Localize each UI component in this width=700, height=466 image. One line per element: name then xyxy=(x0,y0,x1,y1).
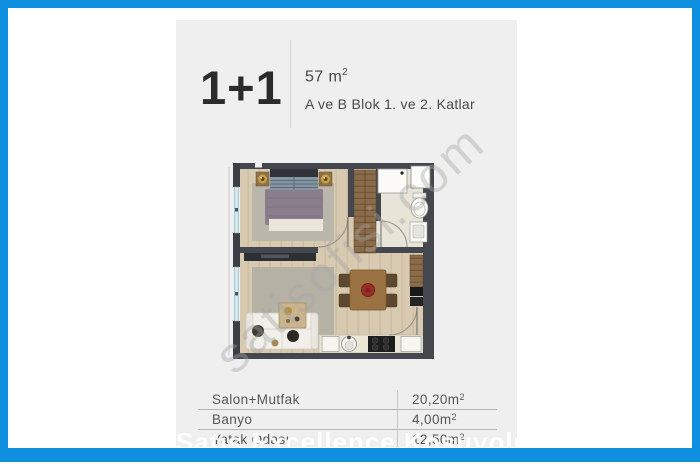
room-area-value: 20,20m xyxy=(412,392,459,407)
bed-headboard xyxy=(270,169,318,177)
frame-top xyxy=(0,0,700,8)
cooktop xyxy=(368,336,395,352)
header-divider xyxy=(290,40,291,128)
content-panel: 1+1 57 m2 A ve B Blok 1. ve 2. Katlar xyxy=(176,20,517,447)
frame-bottom xyxy=(0,448,700,462)
room-area: 20,20m2 xyxy=(397,390,497,409)
kitchen-tall-cabinet xyxy=(410,255,423,287)
room-area-value: 4,00m xyxy=(412,412,452,427)
total-area-sup: 2 xyxy=(342,67,348,78)
dining-chair xyxy=(385,274,397,287)
room-area-sup: 2 xyxy=(459,392,464,402)
oven xyxy=(410,287,423,296)
total-area: 57 m2 xyxy=(305,67,348,86)
total-area-value: 57 m xyxy=(305,68,342,85)
block-floor-info: A ve B Blok 1. ve 2. Katlar xyxy=(305,96,475,112)
frame-right xyxy=(692,0,700,462)
plan-type-title: 1+1 xyxy=(200,64,283,111)
frame-left xyxy=(0,0,8,462)
bedroom-furniture xyxy=(252,169,334,241)
dining-chair xyxy=(385,294,397,307)
table-row: Salon+Mutfak 20,20m2 xyxy=(198,390,497,410)
bottom-watermark: Satış Excellence Koşuyolu xyxy=(176,427,517,447)
room-label: Banyo xyxy=(198,412,397,427)
dishwasher xyxy=(322,337,339,352)
room-area-sup: 2 xyxy=(452,412,457,422)
fridge xyxy=(410,297,423,306)
